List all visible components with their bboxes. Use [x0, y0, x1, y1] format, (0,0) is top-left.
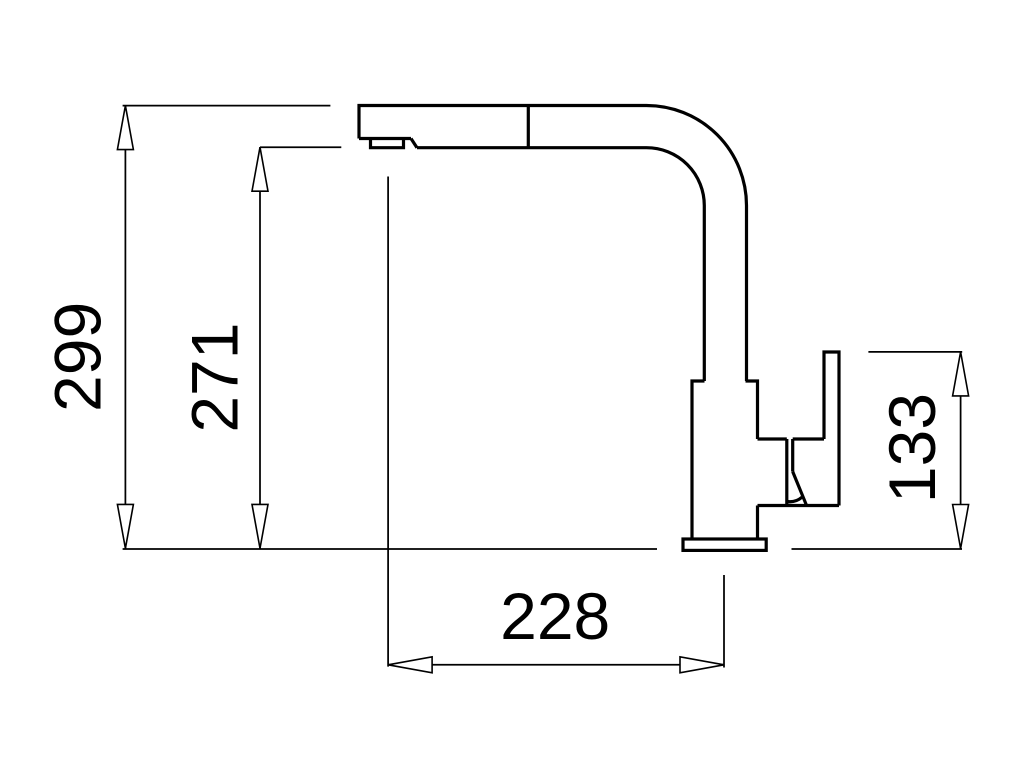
- svg-text:228: 228: [500, 579, 610, 653]
- svg-text:299: 299: [40, 302, 114, 412]
- svg-text:271: 271: [177, 323, 251, 433]
- svg-text:133: 133: [875, 393, 949, 503]
